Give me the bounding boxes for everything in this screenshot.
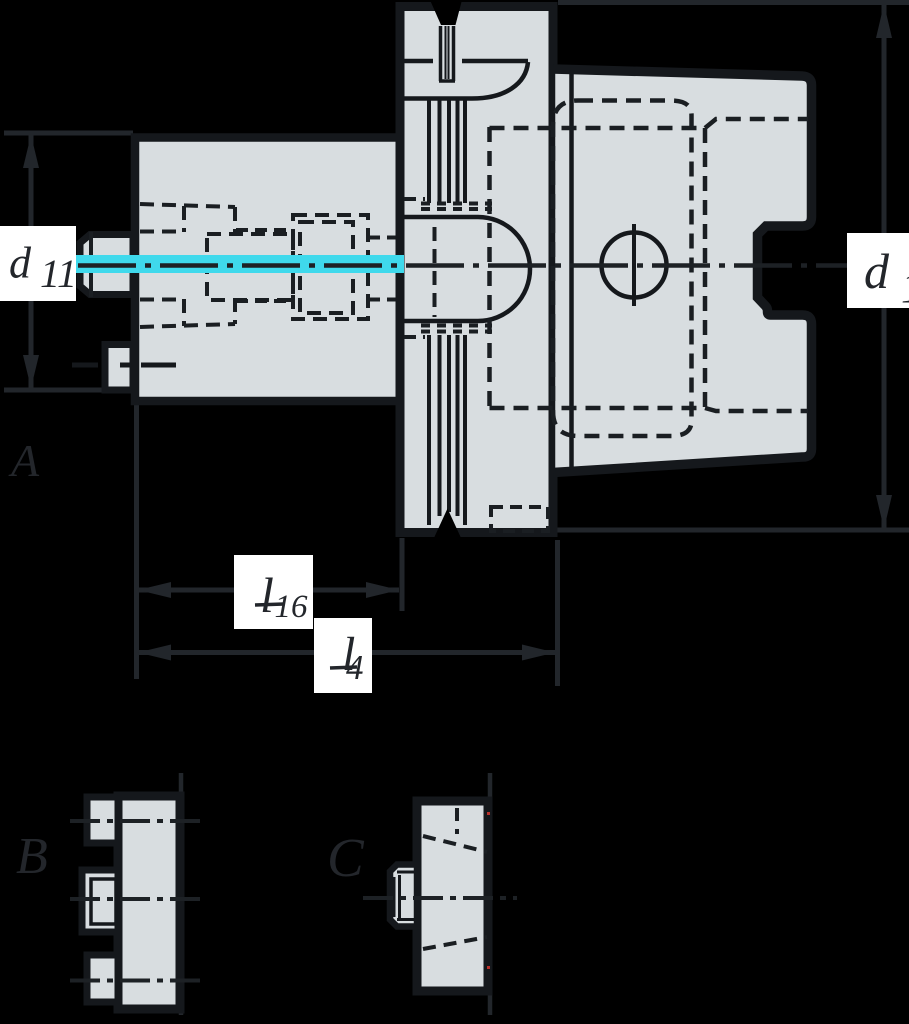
svg-text:1: 1 (901, 263, 909, 312)
svg-text:A: A (8, 435, 40, 486)
svg-text:C: C (327, 827, 365, 888)
svg-text:l: l (260, 567, 274, 623)
svg-text:11: 11 (40, 251, 77, 296)
svg-text:d: d (9, 239, 32, 288)
svg-text:16: 16 (275, 589, 309, 625)
svg-text:4: 4 (346, 648, 364, 687)
svg-text:d: d (864, 243, 890, 299)
svg-text:B: B (16, 828, 48, 885)
